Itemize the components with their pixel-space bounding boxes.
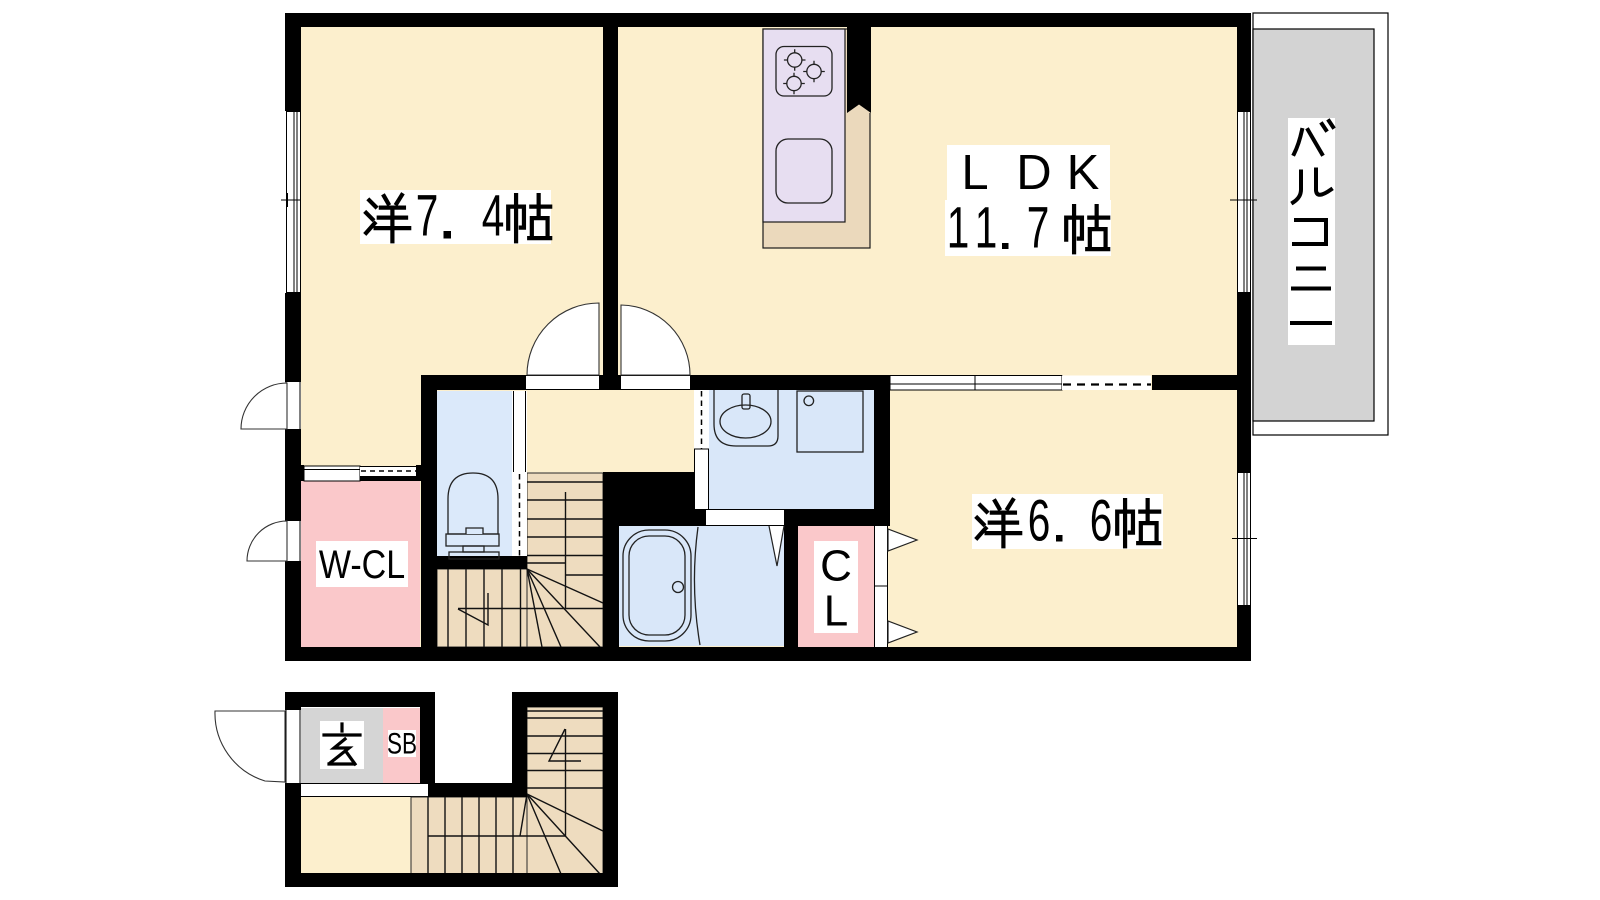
svg-text:L: L <box>961 146 988 200</box>
svg-text:C: C <box>820 542 852 591</box>
svg-text:6: 6 <box>1090 489 1113 554</box>
svg-text:1: 1 <box>975 196 998 261</box>
svg-text:1: 1 <box>947 196 970 261</box>
svg-text:7: 7 <box>1027 196 1050 261</box>
svg-text:W-CL: W-CL <box>319 541 405 586</box>
svg-text:SB: SB <box>387 727 417 761</box>
svg-text:L: L <box>824 587 848 636</box>
svg-text:D: D <box>1016 146 1051 200</box>
svg-text:7: 7 <box>416 184 439 249</box>
svg-text:K: K <box>1067 146 1100 200</box>
svg-text:4: 4 <box>482 184 505 249</box>
svg-text:6: 6 <box>1028 489 1051 554</box>
